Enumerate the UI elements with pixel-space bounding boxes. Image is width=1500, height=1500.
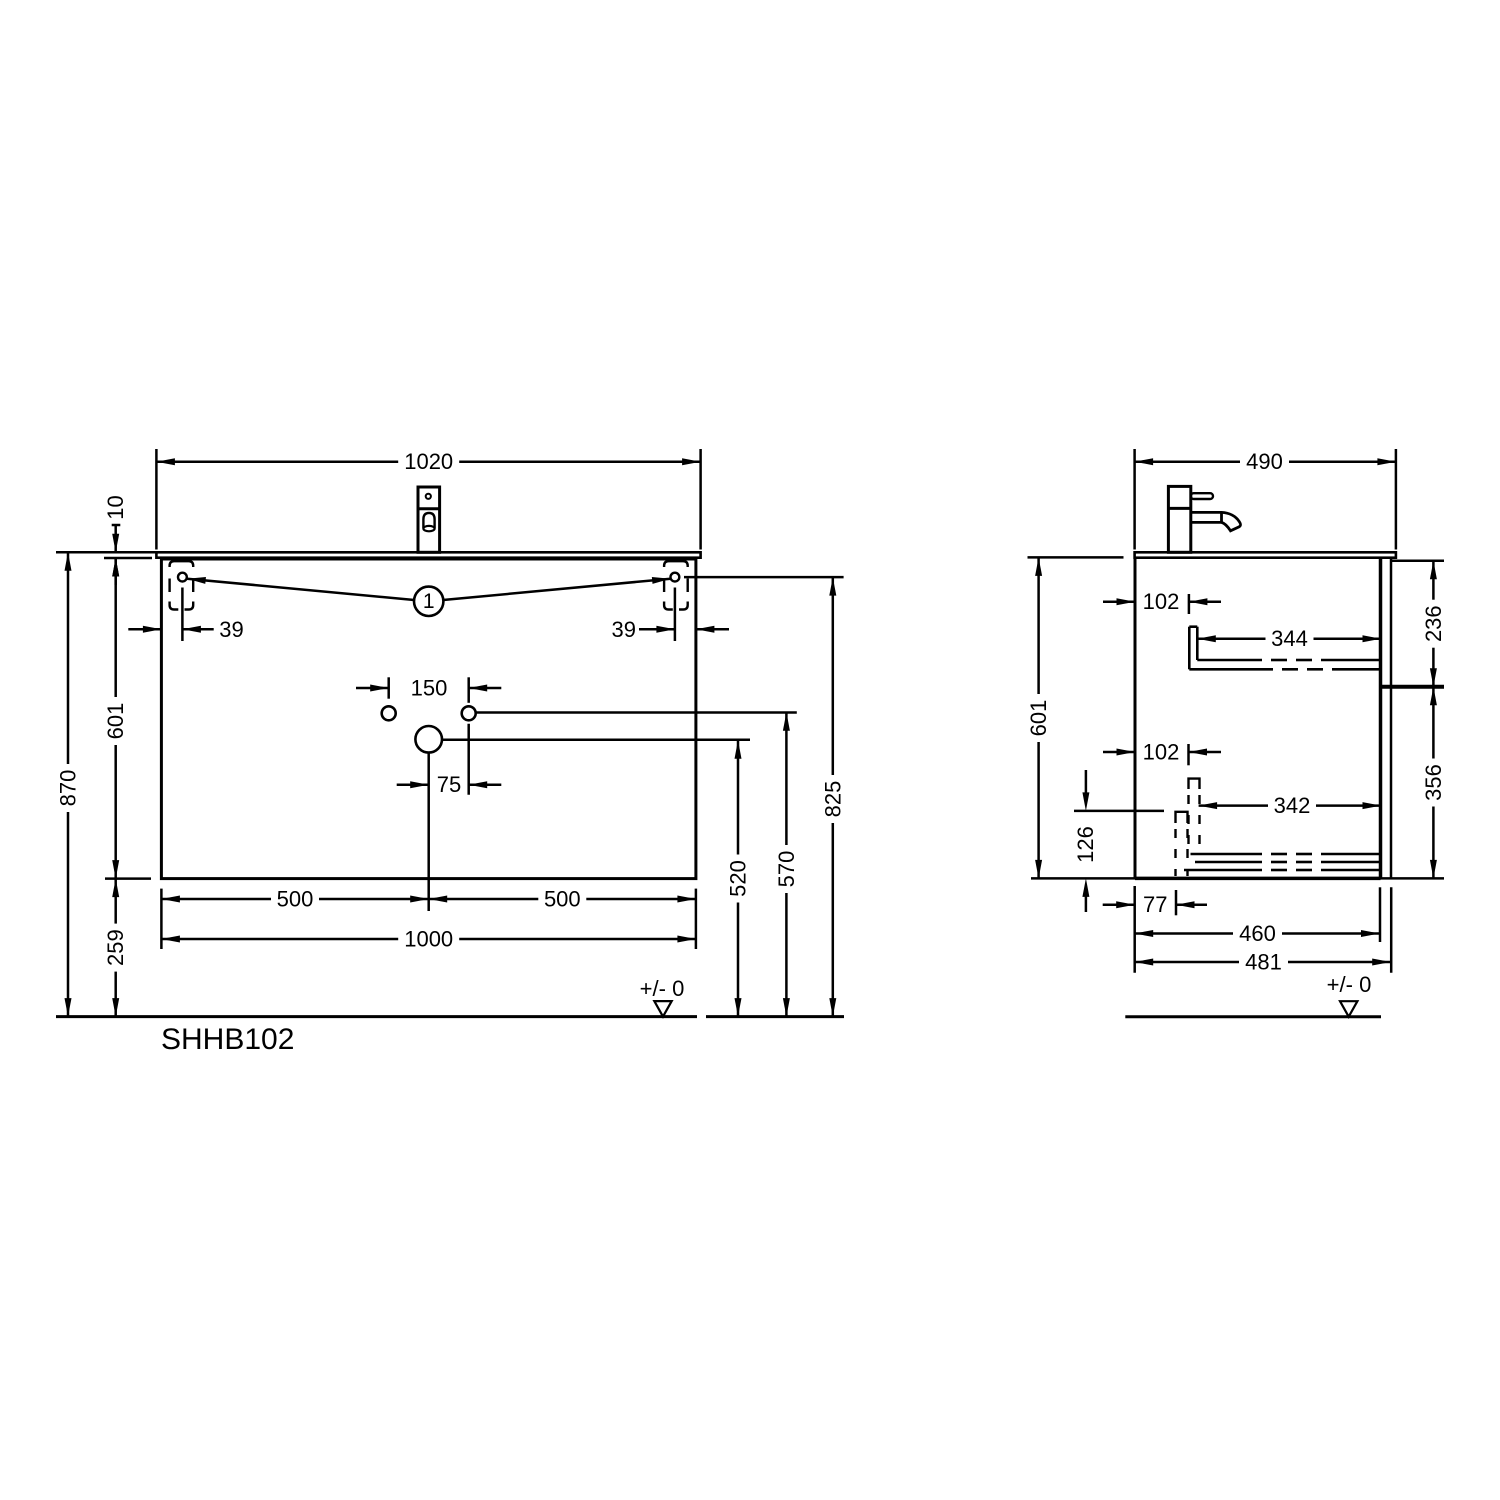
svg-text:500: 500: [277, 887, 314, 912]
svg-text:342: 342: [1274, 793, 1311, 818]
svg-text:825: 825: [820, 781, 845, 818]
svg-text:570: 570: [774, 851, 799, 888]
svg-text:102: 102: [1143, 589, 1180, 614]
svg-text:SHHB102: SHHB102: [161, 1023, 294, 1056]
svg-text:75: 75: [437, 772, 461, 797]
svg-text:1020: 1020: [404, 449, 453, 474]
svg-text:500: 500: [544, 887, 581, 912]
svg-text:1: 1: [423, 590, 435, 613]
svg-text:870: 870: [56, 770, 81, 807]
svg-text:356: 356: [1421, 764, 1446, 801]
svg-text:236: 236: [1421, 605, 1446, 642]
svg-text:77: 77: [1143, 892, 1167, 917]
svg-text:+/- 0: +/- 0: [1327, 972, 1372, 997]
svg-text:601: 601: [103, 703, 128, 740]
svg-text:601: 601: [1026, 700, 1051, 737]
svg-text:1000: 1000: [404, 927, 453, 952]
svg-text:481: 481: [1245, 950, 1282, 975]
svg-text:39: 39: [612, 617, 636, 642]
svg-text:102: 102: [1143, 740, 1180, 765]
svg-text:+/- 0: +/- 0: [640, 976, 685, 1001]
svg-text:520: 520: [726, 860, 751, 897]
svg-text:126: 126: [1073, 826, 1098, 863]
svg-text:460: 460: [1239, 921, 1276, 946]
svg-text:10: 10: [103, 495, 128, 519]
svg-text:344: 344: [1271, 626, 1308, 651]
svg-text:150: 150: [411, 676, 448, 701]
svg-text:39: 39: [219, 617, 243, 642]
svg-text:259: 259: [103, 929, 128, 966]
svg-text:490: 490: [1246, 449, 1283, 474]
